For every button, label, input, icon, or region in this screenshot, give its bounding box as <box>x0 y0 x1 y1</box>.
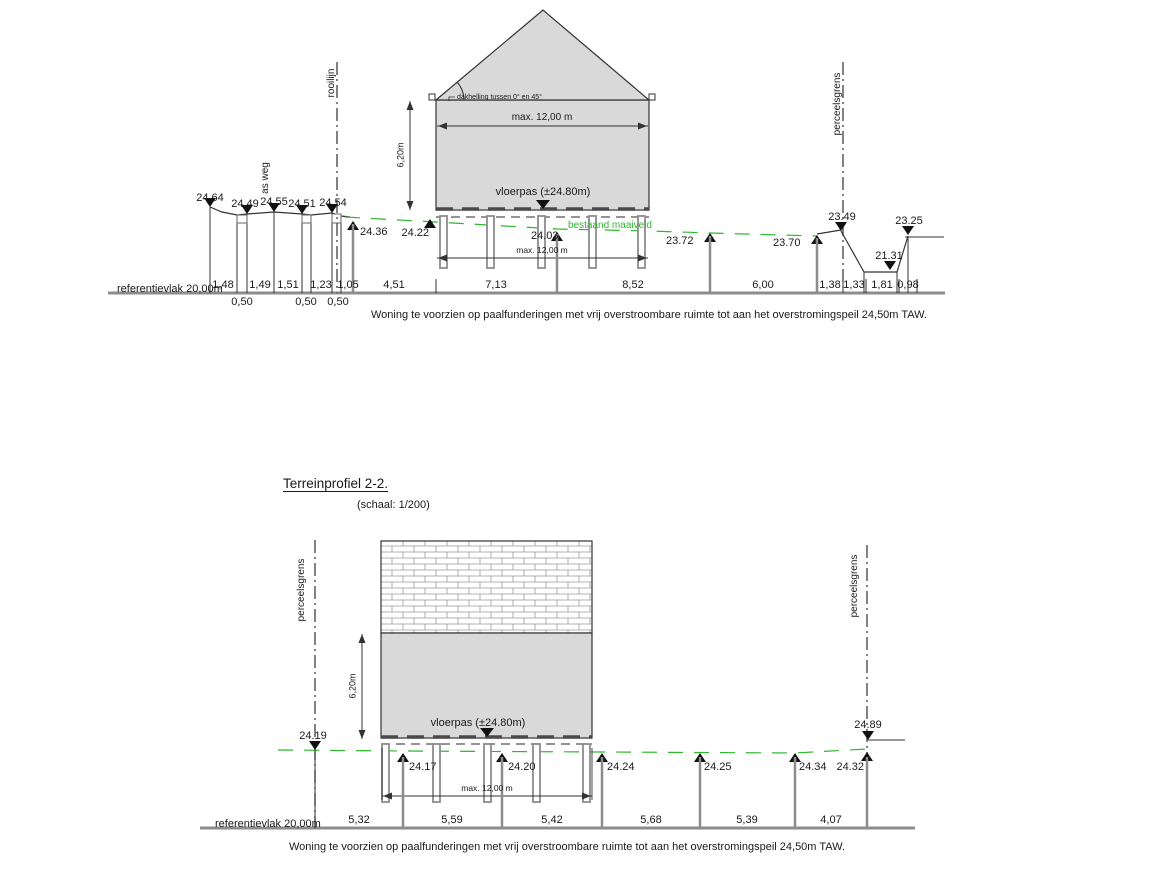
dimension-value: 1,23 <box>310 280 331 291</box>
roof-gable <box>436 10 649 100</box>
dimension-value: 1,49 <box>249 280 270 291</box>
roof-brick-area <box>381 541 592 633</box>
linework <box>0 0 1163 873</box>
perceelsgrens-label: perceelsgrens <box>850 555 860 618</box>
dimension-value: 1,51 <box>277 280 298 291</box>
dakhelling-label: dakhelling tussen 0° en 45° <box>457 94 542 101</box>
dimension-value: 4,51 <box>383 280 404 291</box>
height-dim-label: 6,20m <box>349 673 358 698</box>
dimension-value-below: 0,50 <box>327 297 348 308</box>
profile2-scale: (schaal: 1/200) <box>357 500 430 511</box>
profile2-markers <box>309 728 905 828</box>
as-weg-label: as weg <box>261 162 271 194</box>
elevation-label: 21.31 <box>875 251 903 262</box>
profile2-title: Terreinprofiel 2-2. <box>283 477 388 491</box>
elevation-label: 24.17 <box>409 762 437 773</box>
elevation-label: 24.25 <box>704 762 732 773</box>
dimension-value: 5,32 <box>348 815 369 826</box>
elevation-label: 24.22 <box>401 228 429 239</box>
dimension-value: 1,05 <box>337 280 358 291</box>
height-dim-label: 6,20m <box>397 142 406 167</box>
terrain-profile-drawing: referentievlak 20,00m 1,48 1,49 1,51 1,2… <box>0 0 1163 873</box>
dimension-value: 1,38 <box>819 280 840 291</box>
dimension-value: 5,68 <box>640 815 661 826</box>
max-width-label: max. 12,00 m <box>461 784 513 793</box>
referentievlak-label: referentievlak 20,00m <box>215 819 321 830</box>
dimension-value-below: 0,50 <box>295 297 316 308</box>
elevation-label: 23.70 <box>773 238 801 249</box>
elevation-label: 23.49 <box>828 212 856 223</box>
elevation-label: 24.54 <box>319 198 347 209</box>
elevation-label: 24.19 <box>299 731 327 742</box>
elevation-label: 24.89 <box>854 720 882 731</box>
dimension-value-below: 0,50 <box>231 297 252 308</box>
elevation-label: 24.20 <box>508 762 536 773</box>
dimension-value: 5,59 <box>441 815 462 826</box>
profile1-caption: Woning te voorzien op paalfunderingen me… <box>371 310 927 321</box>
profile2-building <box>381 541 592 744</box>
rooilijn-label: rooilijn <box>327 69 337 98</box>
max-width-label: max. 12,00 m <box>512 113 573 123</box>
dimension-value: 1,33 <box>843 280 864 291</box>
dimension-value: 8,52 <box>622 280 643 291</box>
perceelsgrens-label: perceelsgrens <box>297 559 307 622</box>
perceelsgrens-label: perceelsgrens <box>833 73 843 136</box>
dimension-value: 0,98 <box>897 280 918 291</box>
elevation-label: 24.51 <box>288 199 316 210</box>
dimension-value: 6,00 <box>752 280 773 291</box>
elevation-label: 24.36 <box>360 227 388 238</box>
dimension-value: 1,48 <box>212 280 233 291</box>
elevation-label: 24.55 <box>260 197 288 208</box>
dimension-value: 1,81 <box>871 280 892 291</box>
vloerpas-label: vloerpas (±24.80m) <box>496 187 591 198</box>
elevation-label: 24.49 <box>231 199 259 210</box>
dimension-value: 5,39 <box>736 815 757 826</box>
profile2-caption: Woning te voorzien op paalfunderingen me… <box>289 842 845 853</box>
dimension-value: 7,13 <box>485 280 506 291</box>
elevation-label: 24.64 <box>196 193 224 204</box>
elevation-label: 24.34 <box>799 762 827 773</box>
profile2-maaiveld-line <box>278 749 867 753</box>
elevation-label: 24.24 <box>607 762 635 773</box>
elevation-label: 23.72 <box>666 236 694 247</box>
maaiveld-label: bestaand maaiveld <box>568 221 652 231</box>
profile2-piles <box>382 744 590 802</box>
elevation-label: 24.32 <box>836 762 864 773</box>
elevation-label: 24.03 <box>531 231 559 242</box>
vloerpas-label: vloerpas (±24.80m) <box>431 718 526 729</box>
referentievlak-label: referentievlak 20,00m <box>117 284 223 295</box>
dimension-value: 5,42 <box>541 815 562 826</box>
dimension-value: 4,07 <box>820 815 841 826</box>
max-width-label: max. 12,00 m <box>516 246 568 255</box>
elevation-label: 23.25 <box>895 216 923 227</box>
